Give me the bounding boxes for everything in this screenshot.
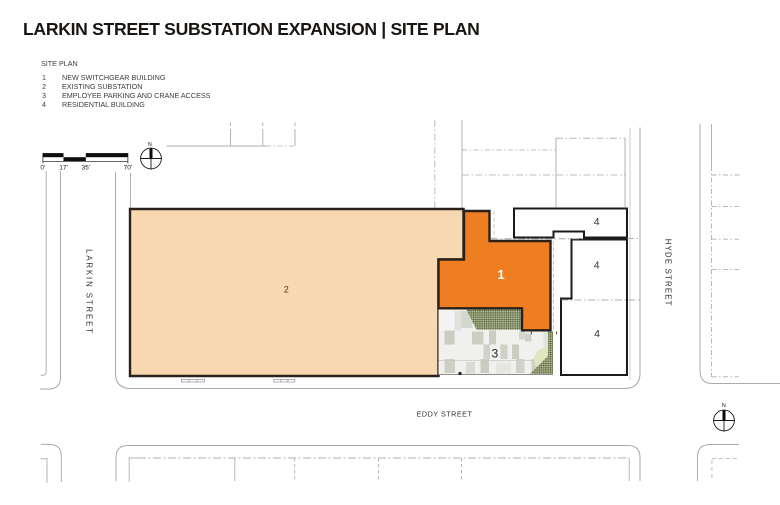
svg-text:HYDE STREET: HYDE STREET (664, 239, 673, 307)
svg-text:4: 4 (594, 216, 600, 228)
svg-text:N: N (148, 142, 152, 148)
svg-text:EDDY STREET: EDDY STREET (417, 410, 473, 419)
svg-text:4: 4 (594, 259, 600, 271)
svg-text:70': 70' (124, 164, 133, 171)
svg-text:4: 4 (594, 328, 600, 340)
svg-text:17': 17' (59, 164, 68, 171)
svg-text:35': 35' (82, 164, 91, 171)
svg-text:2: 2 (284, 284, 289, 294)
svg-text:1: 1 (497, 267, 504, 282)
svg-text:3: 3 (491, 347, 498, 361)
svg-text:N: N (722, 403, 726, 409)
svg-text:0': 0' (40, 164, 45, 171)
svg-text:LARKIN STREET: LARKIN STREET (85, 249, 94, 335)
